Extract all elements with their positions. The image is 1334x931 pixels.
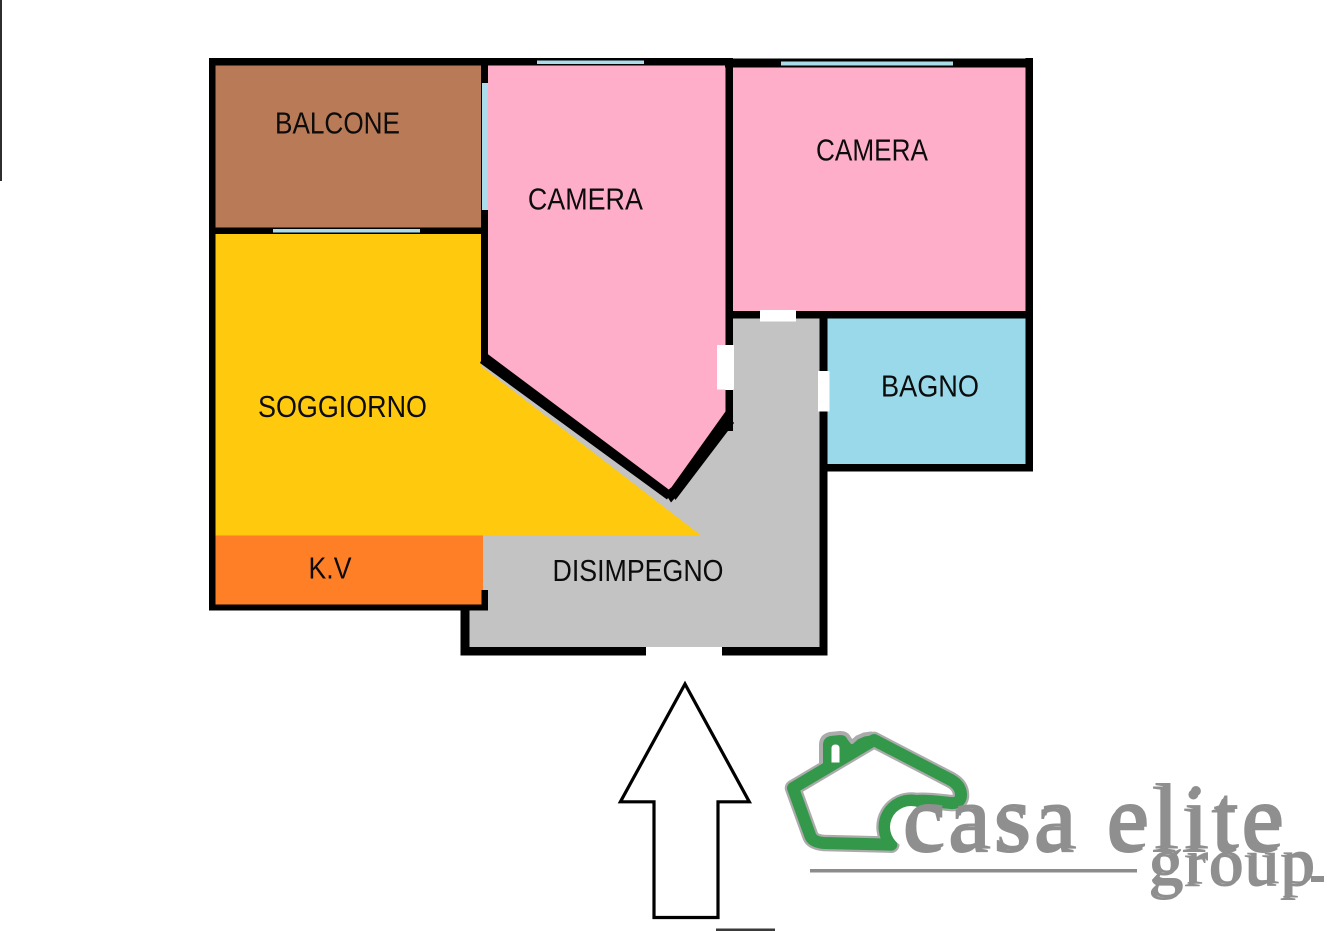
- svg-text:DISIMPEGNO: DISIMPEGNO: [553, 553, 724, 588]
- svg-text:group: group: [1148, 827, 1315, 901]
- svg-text:BAGNO: BAGNO: [881, 369, 979, 404]
- svg-text:CAMERA: CAMERA: [816, 133, 928, 168]
- svg-text:K.V: K.V: [309, 551, 352, 586]
- svg-text:BALCONE: BALCONE: [275, 106, 400, 141]
- svg-text:SOGGIORNO: SOGGIORNO: [258, 389, 427, 424]
- svg-text:CAMERA: CAMERA: [528, 182, 643, 217]
